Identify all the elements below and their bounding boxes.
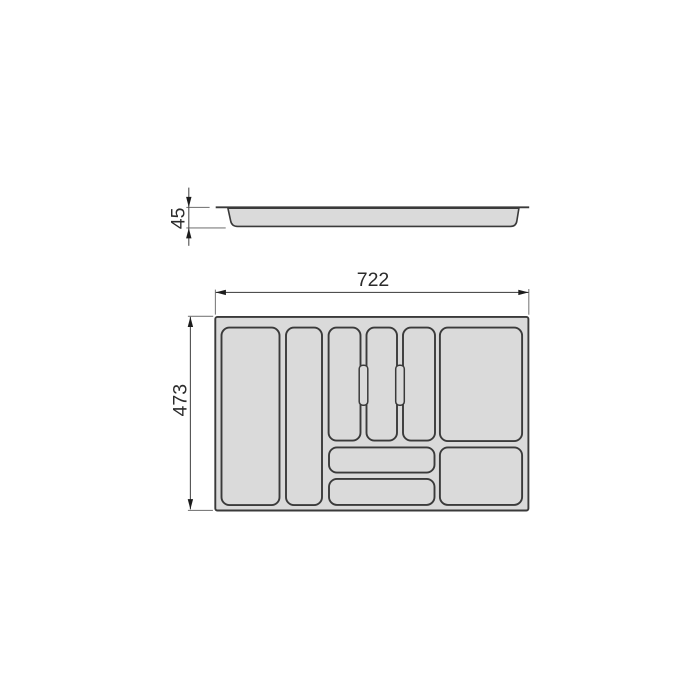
svg-text:45: 45	[168, 207, 190, 229]
svg-text:473: 473	[169, 384, 191, 417]
svg-text:722: 722	[357, 269, 390, 291]
